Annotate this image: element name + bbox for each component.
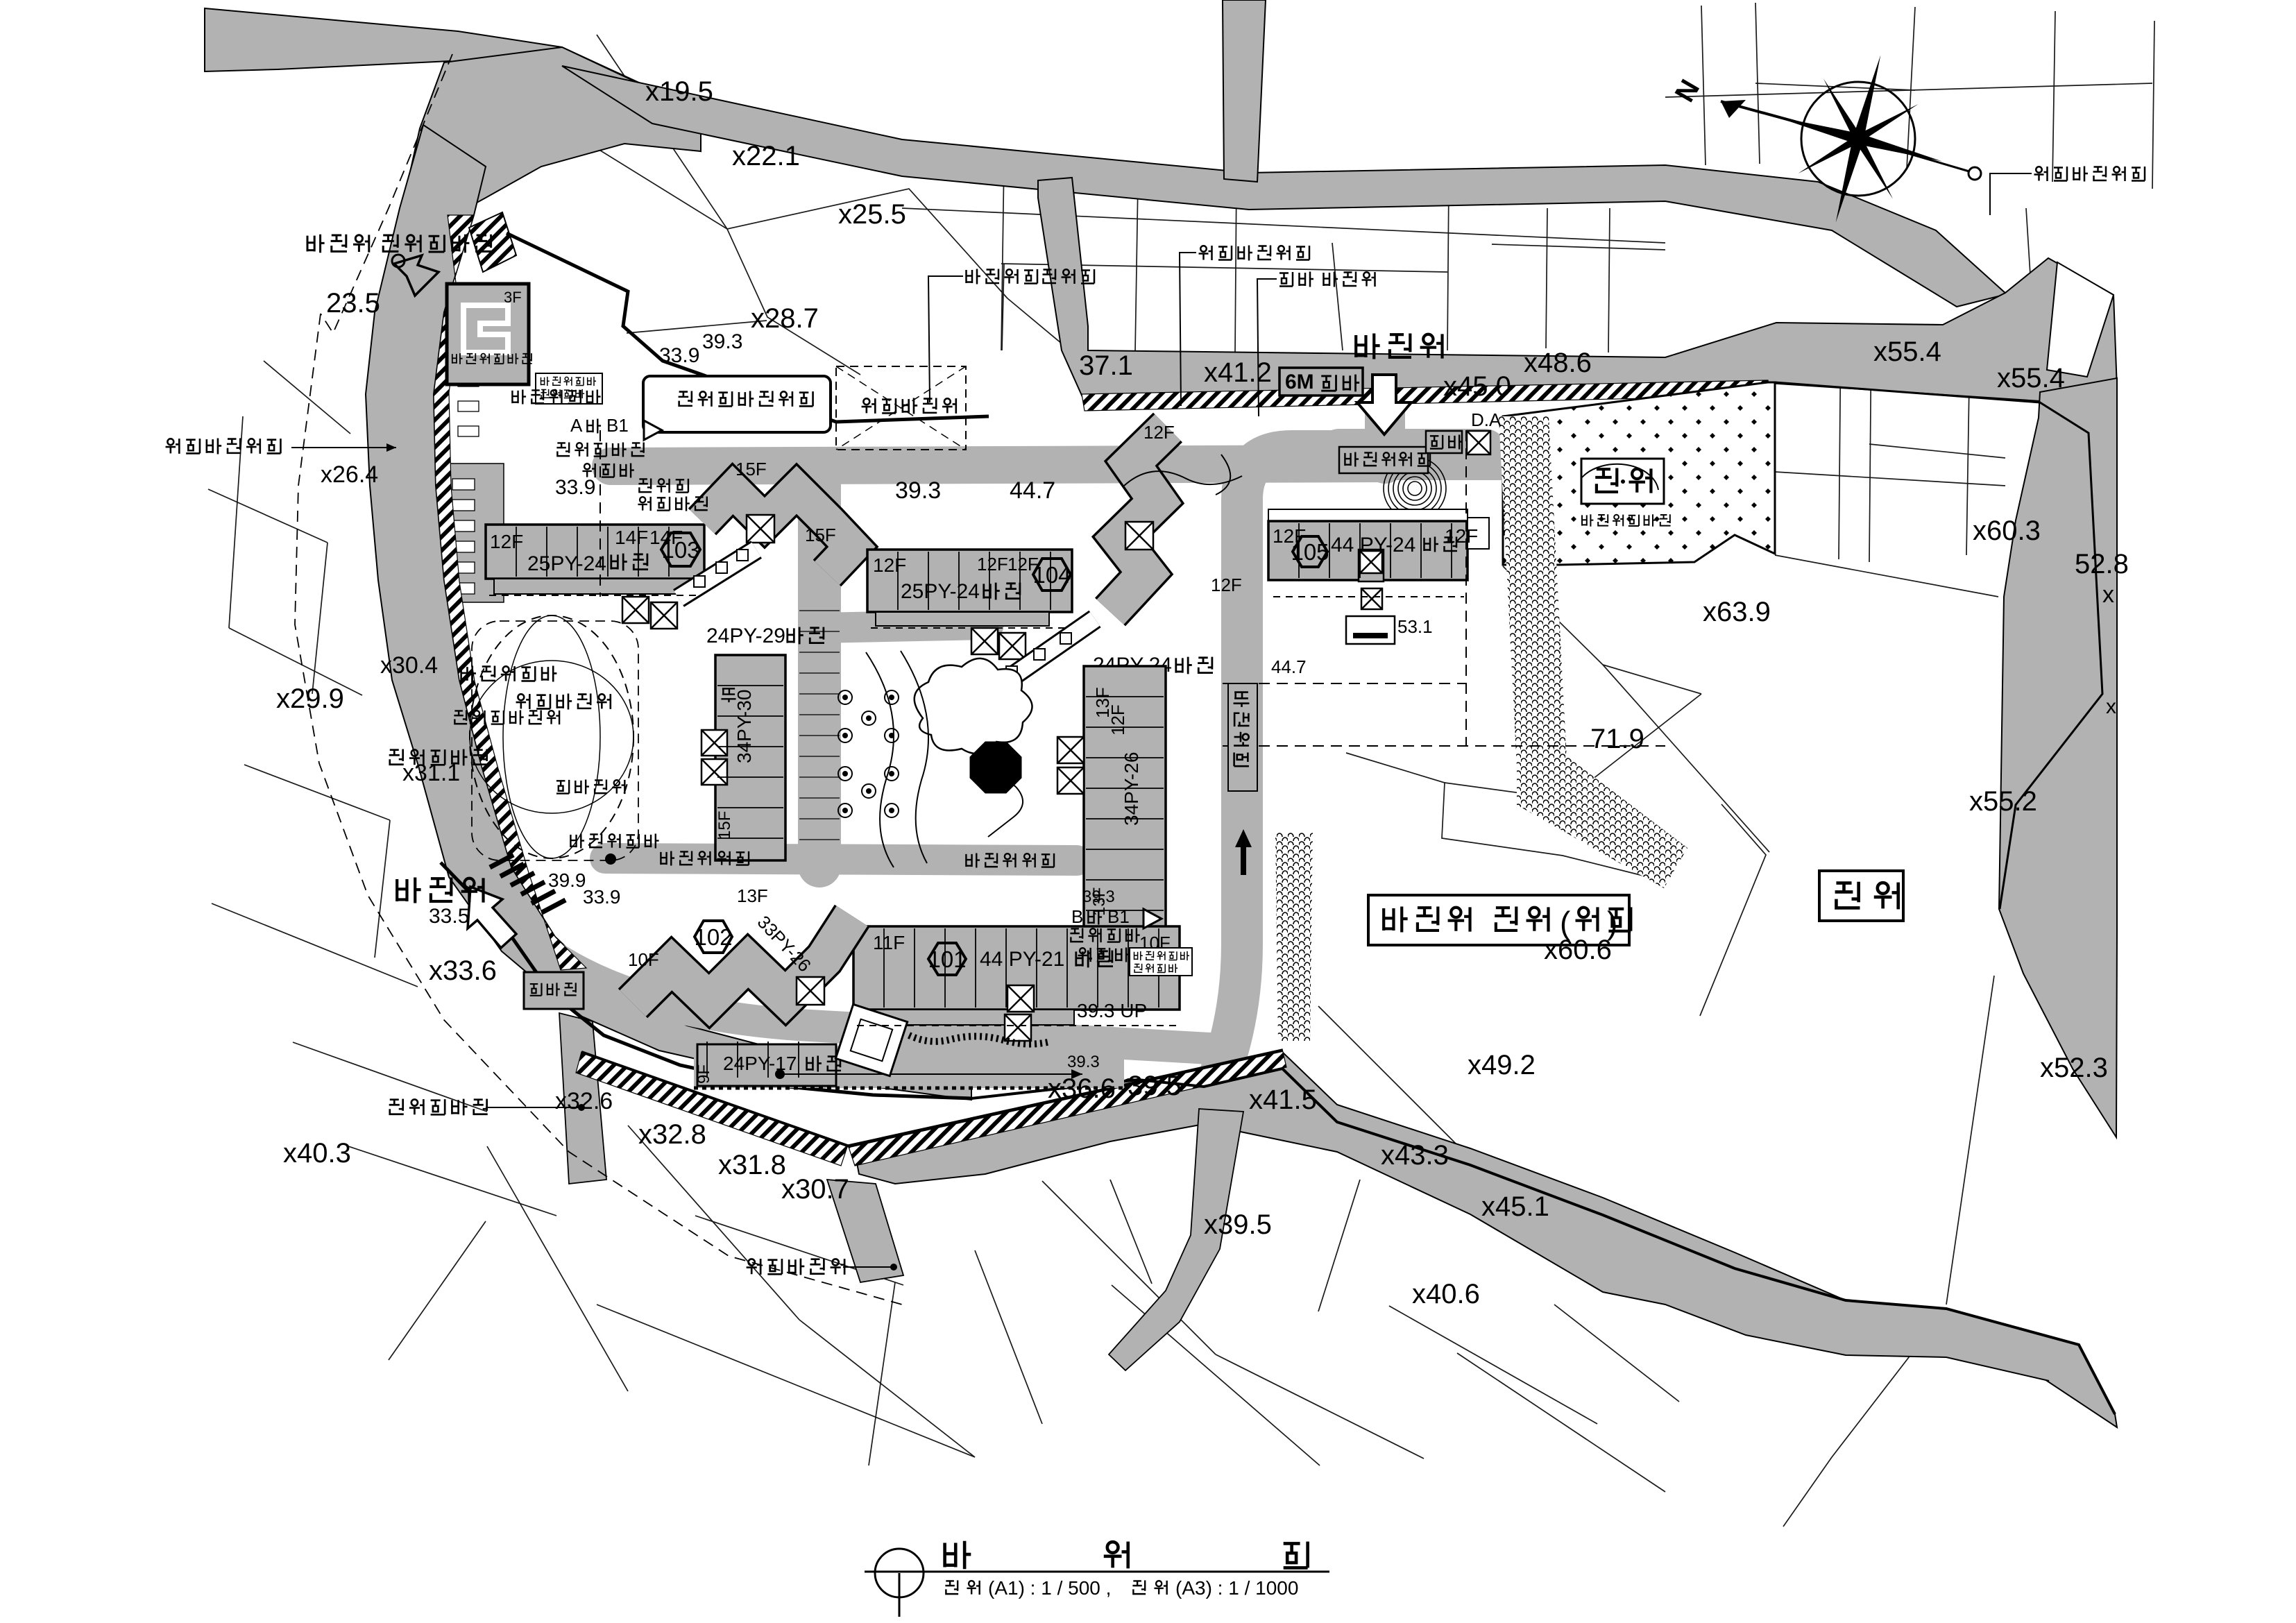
svg-text:37.1: 37.1: [1079, 350, 1133, 381]
svg-text:x32.6: x32.6: [555, 1088, 613, 1114]
svg-text:34PY-30: 34PY-30: [733, 690, 755, 763]
svg-text:39.3: 39.3: [1082, 887, 1115, 906]
svg-text:x40.6: x40.6: [1412, 1279, 1480, 1309]
svg-text:33.9: 33.9: [555, 476, 595, 499]
svg-text:15F: 15F: [735, 459, 767, 479]
svg-text:11F: 11F: [873, 932, 905, 953]
svg-text:x41.5: x41.5: [1249, 1085, 1317, 1115]
svg-text:x43.3: x43.3: [1381, 1140, 1449, 1171]
svg-text:24PY-29: 24PY-29: [706, 624, 785, 647]
svg-text:x45.0: x45.0: [1443, 371, 1511, 402]
svg-text:x32.8: x32.8: [638, 1119, 706, 1150]
svg-text:12F: 12F: [1445, 525, 1478, 547]
svg-text:25PY-24: 25PY-24: [901, 580, 980, 603]
svg-text:25PY-24: 25PY-24: [527, 552, 606, 575]
svg-text:39.3: 39.3: [702, 330, 742, 353]
svg-text:105: 105: [1291, 539, 1329, 565]
svg-text:x26.4: x26.4: [321, 461, 378, 488]
svg-text:12F: 12F: [490, 531, 523, 552]
svg-text:x63.9: x63.9: [1703, 597, 1771, 627]
svg-text:44.7: 44.7: [1010, 477, 1055, 504]
svg-text:B1: B1: [1107, 906, 1130, 927]
svg-text:x: x: [2102, 581, 2114, 608]
svg-text:102: 102: [694, 924, 732, 950]
svg-text:x28.7: x28.7: [751, 303, 819, 334]
svg-text:x22.1: x22.1: [732, 141, 800, 171]
svg-text:15F: 15F: [715, 811, 734, 840]
svg-text:x55.4: x55.4: [1873, 337, 1941, 367]
svg-text:x19.5: x19.5: [645, 76, 713, 107]
svg-text:3F: 3F: [504, 289, 522, 306]
svg-text:12F: 12F: [1143, 422, 1175, 443]
svg-text:44.7: 44.7: [1271, 656, 1307, 677]
svg-text:x55.4: x55.4: [1997, 363, 2065, 393]
svg-text:24PY-17: 24PY-17: [723, 1053, 797, 1074]
svg-text:14F: 14F: [615, 527, 648, 548]
svg-text:39.3: 39.3: [1067, 1053, 1100, 1071]
svg-text:x: x: [2106, 695, 2116, 718]
svg-text:B1: B1: [606, 415, 629, 436]
svg-text:x30.7: x30.7: [781, 1174, 849, 1205]
svg-text:x45.1: x45.1: [1481, 1191, 1549, 1222]
svg-text:39.9: 39.9: [548, 869, 586, 891]
svg-text:103: 103: [661, 537, 699, 563]
svg-text:71.9: 71.9: [1590, 724, 1644, 754]
svg-text:x31.8: x31.8: [718, 1150, 786, 1180]
svg-text:6M: 6M: [1285, 371, 1314, 393]
svg-text:12F: 12F: [873, 554, 906, 576]
svg-text:x30.4: x30.4: [380, 652, 438, 679]
svg-text:53.1: 53.1: [1397, 616, 1433, 637]
svg-text:x49.2: x49.2: [1468, 1050, 1536, 1080]
svg-text:x36.6: x36.6: [1048, 1073, 1116, 1104]
svg-text:x39.5: x39.5: [1204, 1209, 1272, 1240]
svg-text:x60.6: x60.6: [1544, 935, 1612, 965]
svg-text:x60.3: x60.3: [1973, 516, 2041, 546]
svg-text:33.5: 33.5: [429, 905, 469, 928]
svg-text:x40.3: x40.3: [283, 1138, 351, 1169]
svg-text:39.3: 39.3: [895, 477, 941, 504]
svg-text:x31.1: x31.1: [402, 760, 460, 786]
svg-text:x25.5: x25.5: [838, 199, 906, 230]
svg-text:44 PY-21: 44 PY-21: [980, 948, 1064, 971]
svg-text:(A1) : 1 / 500 ,: (A1) : 1 / 500 ,: [988, 1577, 1111, 1599]
svg-text:D.A: D.A: [1471, 409, 1502, 430]
svg-text:x41.2: x41.2: [1204, 357, 1272, 388]
svg-text:12F: 12F: [1107, 704, 1128, 736]
svg-text:x52.3: x52.3: [2040, 1053, 2108, 1083]
svg-text:x55.2: x55.2: [1969, 786, 2037, 817]
svg-text:104: 104: [1032, 562, 1071, 588]
svg-text:101: 101: [928, 946, 966, 972]
svg-text:33.9: 33.9: [659, 344, 699, 367]
svg-text:12F: 12F: [1211, 575, 1242, 595]
svg-text:9F: 9F: [695, 1064, 713, 1084]
svg-text:x48.6: x48.6: [1524, 348, 1592, 378]
svg-text:B: B: [1071, 906, 1083, 927]
svg-text:23.5: 23.5: [326, 288, 380, 318]
svg-text:39.5: 39.5: [1128, 1071, 1182, 1101]
svg-text:15F: 15F: [805, 525, 836, 545]
svg-text:33.9: 33.9: [583, 886, 621, 908]
svg-text:39.3 UP: 39.3 UP: [1077, 1000, 1147, 1021]
svg-text:x29.9: x29.9: [276, 683, 344, 714]
svg-text:12F: 12F: [977, 554, 1008, 575]
svg-text:A: A: [570, 415, 583, 436]
svg-text:10F: 10F: [628, 949, 659, 970]
svg-text:13F: 13F: [737, 885, 768, 906]
svg-text:x33.6: x33.6: [429, 955, 497, 986]
svg-text:(A3) : 1 / 1000: (A3) : 1 / 1000: [1175, 1577, 1298, 1599]
svg-text:52.8: 52.8: [2075, 549, 2129, 579]
